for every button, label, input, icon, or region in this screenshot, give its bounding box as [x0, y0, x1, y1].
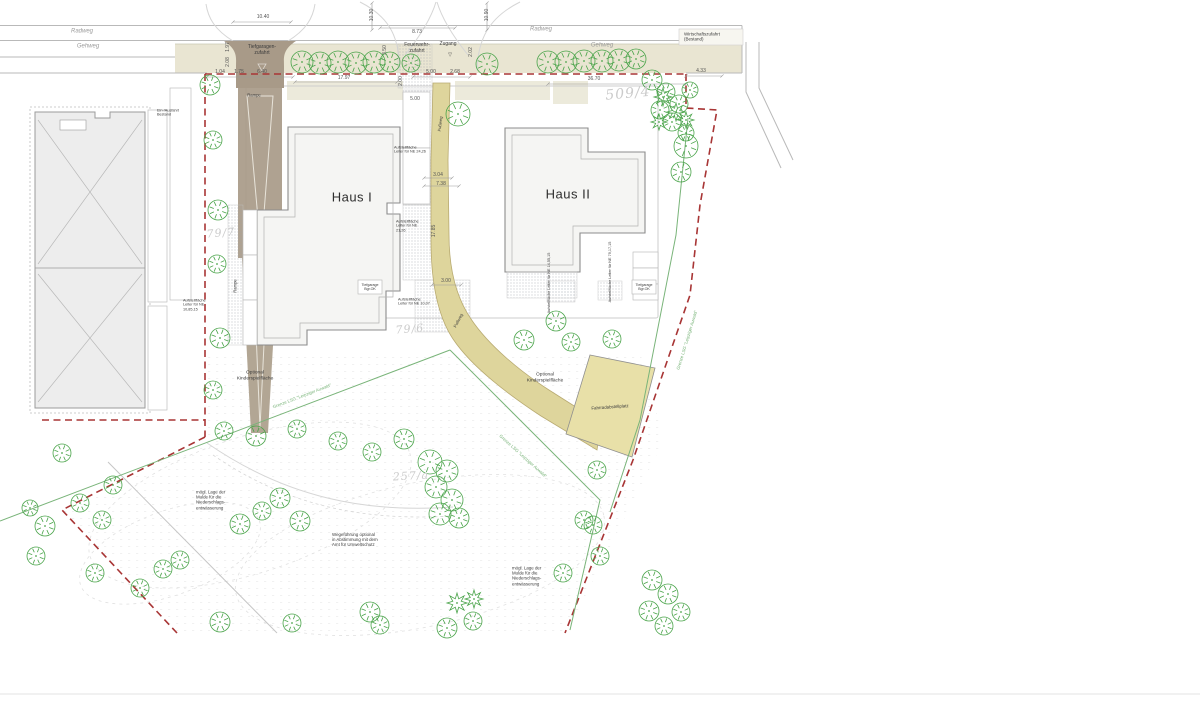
parcel-79-7: 79/7: [206, 226, 236, 241]
tree-center-dot: [457, 113, 459, 115]
dimension-3.04: 3.04: [433, 172, 443, 178]
dimension-36.70: 36.70: [588, 76, 601, 82]
tree-center-dot: [373, 61, 375, 63]
tree-center-dot: [523, 339, 525, 341]
tree-center-dot: [592, 524, 594, 526]
tree-center-dot: [583, 519, 585, 521]
tree-center-dot: [651, 79, 653, 81]
rampe-label: Rampe: [247, 94, 261, 99]
tree-center-dot: [596, 469, 598, 471]
tree-center-dot: [216, 263, 218, 265]
tree-center-dot: [635, 58, 637, 60]
zugang-label: Zugang: [440, 42, 457, 48]
tree-center-dot: [299, 520, 301, 522]
mulde-label-left: mögl. Lage der Mulde für die Niederschla…: [196, 490, 225, 511]
zugang-arrow: ▽: [448, 53, 452, 59]
tree-center-dot: [458, 517, 460, 519]
tree-center-dot: [239, 523, 241, 525]
tree-center-dot: [685, 145, 687, 147]
tree-center-dot: [486, 63, 488, 65]
tree-center-dot: [648, 610, 650, 612]
tree-center-dot: [435, 486, 437, 488]
tree-center-dot: [678, 103, 680, 105]
tree-center-dot: [212, 389, 214, 391]
dimension-17.85: 17.85: [431, 225, 437, 238]
tree-center-dot: [651, 579, 653, 581]
aufstellflaeche-4: Aufstellfläche Leiter für NE 10,07: [398, 298, 430, 307]
dimension-1.75: 1.75: [234, 69, 244, 75]
dimension-3.00: 3.00: [441, 278, 451, 284]
site-plan: RadwegGehwegRadwegGehwegWirtschaftszufah…: [0, 0, 1200, 710]
entrance-paving-left: [287, 81, 403, 100]
radweg-label-right: Radweg: [530, 26, 552, 33]
tree-center-dot: [261, 510, 263, 512]
tree-center-dot: [658, 121, 660, 123]
tree-center-dot: [403, 438, 405, 440]
aufstellflaeche-1: Aufstellfläche Leiter für NE 10,85,15: [183, 298, 206, 311]
bestand-zufahrt-label: Ein-/Ausfahrt Bestand: [157, 109, 179, 118]
tiefgarage-box-label-2: Tiefgarage Bgr.OK: [635, 283, 652, 291]
tree-center-dot: [473, 598, 475, 600]
wirtschaftszufahrt-road: [746, 42, 781, 168]
tree-center-dot: [689, 89, 691, 91]
dimension-6.40: 6.40: [257, 69, 267, 75]
tree-center-dot: [583, 60, 585, 62]
tree-center-dot: [291, 622, 293, 624]
haus-1-label: Haus I: [332, 189, 373, 204]
tree-center-dot: [562, 572, 564, 574]
tree-center-dot: [671, 121, 673, 123]
tree-center-dot: [565, 61, 567, 63]
tree-center-dot: [618, 59, 620, 61]
kinderspielflaeche-label-right: Optional Kinderspielfläche: [527, 372, 564, 383]
dimension-1.97: 1.97: [225, 42, 231, 52]
dimension-4.33: 4.33: [696, 68, 706, 74]
dimension-5.00: 5.00: [426, 69, 436, 75]
feuerwehrzufahrt-label: Feuerwehr- zufahrt: [404, 43, 430, 55]
tree-center-dot: [601, 60, 603, 62]
dimension-line: [231, 20, 292, 23]
tree-center-dot: [456, 602, 458, 604]
haus-2-label: Haus II: [546, 186, 591, 201]
tree-center-dot: [570, 341, 572, 343]
tree-center-dot: [112, 484, 114, 486]
site-plan-drawing: [0, 0, 1200, 710]
entrance-paving-right: [455, 81, 550, 100]
tree-center-dot: [680, 611, 682, 613]
tree-center-dot: [179, 559, 181, 561]
wirtschaftszufahrt-label: Wirtschaftszufahrt (Bestand): [684, 32, 720, 43]
dimension-5.00: 5.00: [410, 96, 420, 102]
entrance-paving-east: [553, 81, 588, 104]
tree-center-dot: [296, 428, 298, 430]
tree-center-dot: [555, 320, 557, 322]
dimension-17.97: 17.97: [338, 75, 351, 81]
tree-center-dot: [667, 593, 669, 595]
tree-center-dot: [101, 519, 103, 521]
tree-center-dot: [355, 62, 357, 64]
tree-center-dot: [663, 625, 665, 627]
tree-center-dot: [29, 507, 31, 509]
dimension-1.04: 1.04: [215, 69, 225, 75]
tree-center-dot: [680, 171, 682, 173]
tree-center-dot: [451, 499, 453, 501]
tree-center-dot: [301, 61, 303, 63]
tree-center-dot: [209, 84, 211, 86]
mulde-label-right: mögl. Lage der Mulde für die Niederschla…: [512, 566, 541, 587]
dimension-2.00: 2.00: [398, 76, 404, 86]
tree-center-dot: [389, 61, 391, 63]
tree-center-dot: [472, 620, 474, 622]
tree-center-dot: [217, 209, 219, 211]
tree-center-dot: [223, 430, 225, 432]
aufstellflaeche-3: Aufstellfläche Leiter für NE 21,26: [396, 219, 419, 232]
radweg-label-left: Radweg: [71, 28, 93, 35]
tree-center-dot: [379, 624, 381, 626]
tree-center-dot: [547, 61, 549, 63]
aufstellflaeche-6: Aufstellfläche Leiter für NE 79,17,15: [608, 242, 612, 303]
parcel-79-6: 79/6: [395, 322, 425, 337]
tree-center-dot: [94, 572, 96, 574]
tree-center-dot: [212, 139, 214, 141]
dimension-10.30: 10.30: [369, 9, 375, 22]
parcel-257-a: 257/a: [393, 470, 430, 485]
tree-center-dot: [429, 461, 431, 463]
dimension-10.40: 10.40: [257, 14, 270, 20]
tree-center-dot: [44, 525, 46, 527]
tree-center-dot: [439, 513, 441, 515]
wegefuehrung-label: Wegeführung optional in Abstimmung mit d…: [332, 532, 378, 548]
tree-center-dot: [685, 119, 687, 121]
tree-center-dot: [369, 611, 371, 613]
tree-center-dot: [611, 338, 613, 340]
dimension-2.02: 2.02: [468, 47, 474, 57]
dimension-3.50: 3.50: [382, 45, 388, 55]
tree-center-dot: [337, 440, 339, 442]
kinderspielflaeche-label-left: Optional Kinderspielfläche: [237, 370, 274, 381]
tree-center-dot: [675, 111, 677, 113]
tree-center-dot: [219, 621, 221, 623]
existing-building-tag: [60, 120, 86, 130]
tree-center-dot: [662, 96, 664, 98]
aufstellflaeche-5: Aufstellfläche Leiter für NE 14,55,15: [547, 253, 551, 314]
tree-center-dot: [446, 470, 448, 472]
tree-center-dot: [659, 109, 661, 111]
tree-center-dot: [279, 497, 281, 499]
tree-center-dot: [410, 62, 412, 64]
tree-center-dot: [319, 62, 321, 64]
dimension-10.90: 10.90: [484, 9, 490, 22]
aufstellflaeche-2: Aufstellfläche Leiter für NE 24,26: [394, 146, 426, 155]
dimension-8.73: 8.73: [412, 29, 422, 35]
tree-center-dot: [35, 555, 37, 557]
tree-center-dot: [371, 451, 373, 453]
gehweg-label-left: Gehweg: [77, 43, 99, 50]
tree-center-dot: [61, 452, 63, 454]
tree-center-dot: [446, 627, 448, 629]
gehweg-label-right: Gehweg: [591, 42, 613, 49]
tree-center-dot: [255, 435, 257, 437]
dimension-line: [684, 74, 723, 77]
tiefgaragenzufahrt-label: Tiefgaragen- zufahrt: [248, 45, 276, 57]
tree-center-dot: [162, 568, 164, 570]
tree-center-dot: [79, 502, 81, 504]
dimension-7.38: 7.38: [436, 181, 446, 187]
dimension-2.08: 2.08: [225, 57, 231, 67]
rampe-label-rotated: Rampe: [234, 279, 239, 293]
dimension-2.68: 2.68: [450, 69, 460, 75]
tree-center-dot: [337, 61, 339, 63]
tiefgarage-box-label-1: Tiefgarage Bgr.OK: [361, 283, 378, 291]
tree-center-dot: [599, 555, 601, 557]
tree-center-dot: [139, 587, 141, 589]
tree-center-dot: [219, 337, 221, 339]
existing-building: [30, 88, 191, 413]
